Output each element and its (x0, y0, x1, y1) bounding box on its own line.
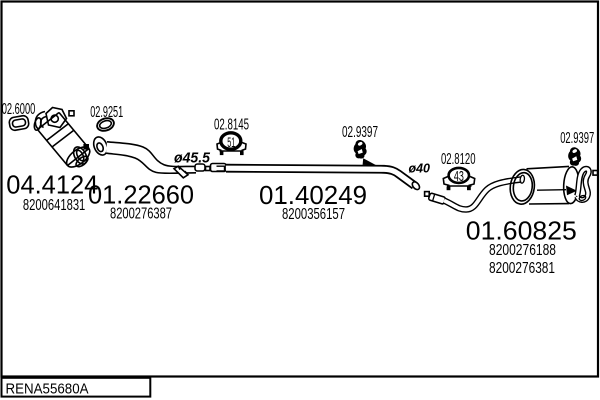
svg-text:8200276381: 8200276381 (489, 260, 555, 277)
svg-text:8200276188: 8200276188 (489, 242, 556, 259)
svg-text:51: 51 (227, 135, 235, 150)
svg-text:02.6000: 02.6000 (2, 101, 36, 118)
svg-text:02.8145: 02.8145 (214, 117, 249, 134)
svg-text:02.8120: 02.8120 (441, 151, 476, 168)
svg-text:02.9251: 02.9251 (90, 104, 123, 121)
svg-text:8200641831: 8200641831 (23, 197, 85, 214)
svg-text:02.9397: 02.9397 (560, 130, 594, 147)
svg-text:04.4124: 04.4124 (6, 172, 98, 200)
svg-text:02.9397: 02.9397 (342, 124, 378, 141)
svg-text:8200276387: 8200276387 (110, 206, 172, 223)
svg-text:ø45.5: ø45.5 (174, 151, 211, 167)
svg-text:8200356157: 8200356157 (282, 206, 345, 223)
svg-text:ø40: ø40 (409, 161, 431, 175)
svg-text:43: 43 (454, 169, 464, 185)
svg-text:RENA55680A: RENA55680A (6, 382, 89, 398)
